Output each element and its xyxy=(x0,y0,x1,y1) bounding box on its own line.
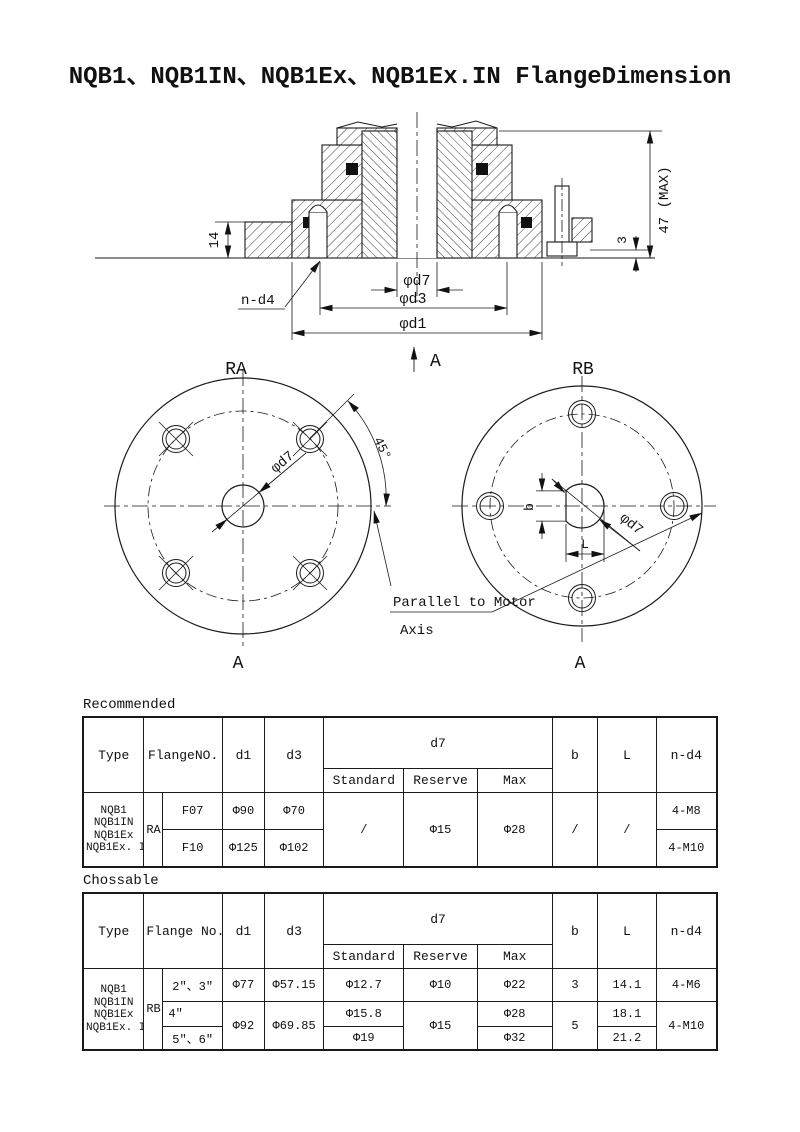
cell-d7-standard: / xyxy=(324,793,404,868)
type-line: NQB1Ex xyxy=(86,1009,141,1022)
dim-d1-text: φd1 xyxy=(399,316,426,333)
ra-section-a-text: A xyxy=(233,654,244,674)
chossable-section: Chossable Type Flange No. d1 d3 d7 b L n… xyxy=(82,873,718,1051)
cell-d7-standard: Φ15.8 xyxy=(324,1002,404,1027)
type-line: NQB1Ex. IN xyxy=(86,842,141,855)
col-header-standard: Standard xyxy=(324,945,404,969)
cell-d3: Φ69.85 xyxy=(264,1002,324,1051)
cell-d7-max: Φ28 xyxy=(477,1002,552,1027)
chossable-table: Type Flange No. d1 d3 d7 b L n-d4 Standa… xyxy=(82,892,718,1051)
cell-d1: Φ77 xyxy=(222,969,264,1002)
table-row: 5"、6" Φ19 Φ32 21.2 xyxy=(83,1027,717,1051)
cell-d7-standard: Φ19 xyxy=(324,1027,404,1051)
col-header-b: b xyxy=(552,893,598,969)
ra-45deg-text: 45° xyxy=(370,435,394,463)
rb-section-a-text: A xyxy=(575,654,586,674)
cell-d3: Φ57.15 xyxy=(264,969,324,1002)
motor-axis-note: Parallel to Motor Axis xyxy=(374,511,702,639)
rb-l-dimension: L xyxy=(566,510,604,562)
cell-b: 5 xyxy=(552,1002,598,1051)
type-line: NQB1IN xyxy=(86,997,141,1010)
cell-d1: Φ125 xyxy=(222,830,264,868)
col-header-d3: d3 xyxy=(264,893,324,969)
cell-n-d4: 4-M10 xyxy=(656,830,717,868)
cell-d7-max: Φ32 xyxy=(477,1027,552,1051)
col-header-reserve: Reserve xyxy=(404,769,478,793)
cell-n-d4: 4-M6 xyxy=(656,969,717,1002)
col-header-n-d4: n-d4 xyxy=(656,717,717,793)
cell-flange-f10: F10 xyxy=(163,830,223,868)
cell-d1: Φ90 xyxy=(222,793,264,830)
motor-axis-note-line1: Parallel to Motor xyxy=(393,595,536,611)
col-header-max: Max xyxy=(477,769,552,793)
cell-d7-reserve: Φ15 xyxy=(404,793,478,868)
cell-type: NQB1 NQB1IN NQB1Ex NQB1Ex. IN xyxy=(83,793,144,868)
cell-d3: Φ70 xyxy=(264,793,324,830)
type-line: NQB1Ex. IN xyxy=(86,1022,141,1035)
table-header-row: Type Flange No. d1 d3 d7 b L n-d4 xyxy=(83,893,717,945)
cell-d7-reserve: Φ10 xyxy=(404,969,478,1002)
section-a-text: A xyxy=(430,352,441,372)
type-line: NQB1 xyxy=(86,805,141,818)
col-header-d1: d1 xyxy=(222,893,264,969)
col-header-l: L xyxy=(598,717,656,793)
col-header-d1: d1 xyxy=(222,717,264,793)
col-header-d7: d7 xyxy=(324,893,552,945)
view-ra-title: RA xyxy=(225,360,247,380)
cell-n-d4: 4-M8 xyxy=(656,793,717,830)
col-header-max: Max xyxy=(477,945,552,969)
type-line: NQB1Ex xyxy=(86,830,141,843)
motor-axis-note-line2: Axis xyxy=(400,623,434,639)
cell-flange-size: 4" xyxy=(163,1002,223,1027)
cell-l: 14.1 xyxy=(598,969,656,1002)
col-header-b: b xyxy=(552,717,598,793)
dim-d3-text: φd3 xyxy=(399,291,426,308)
view-rb-title: RB xyxy=(572,360,594,380)
cell-flange-f07: F07 xyxy=(163,793,223,830)
col-header-d7: d7 xyxy=(324,717,552,769)
cell-d7-reserve: Φ15 xyxy=(404,1002,478,1051)
cell-flange-size: 2"、3" xyxy=(163,969,223,1002)
view-ra: RA φd7 45° A xyxy=(104,360,394,674)
n-d4-text: n-d4 xyxy=(241,293,275,309)
type-line: NQB1 xyxy=(86,984,141,997)
table-row: NQB1 NQB1IN NQB1Ex NQB1Ex. IN RA F07 Φ90… xyxy=(83,793,717,830)
cell-b: / xyxy=(552,793,598,868)
recommended-table: Type FlangeNO. d1 d3 d7 b L n-d4 Standar… xyxy=(82,716,718,868)
cell-l: / xyxy=(598,793,656,868)
recommended-section: Recommended Type FlangeNO. d1 d3 d7 b L … xyxy=(82,697,718,868)
table-row: 4" Φ92 Φ69.85 Φ15.8 Φ15 Φ28 5 18.1 4-M10 xyxy=(83,1002,717,1027)
chossable-heading: Chossable xyxy=(83,873,718,889)
table-header-row: Type FlangeNO. d1 d3 d7 b L n-d4 xyxy=(83,717,717,769)
cell-d3: Φ102 xyxy=(264,830,324,868)
col-header-flange-no: Flange No. xyxy=(144,893,223,969)
dim-d7-text: φd7 xyxy=(403,273,430,290)
dim-47max-text: 47 (MAX) xyxy=(657,166,673,233)
view-rb: RB b L φd7 xyxy=(452,360,716,674)
ra-d7-text: φd7 xyxy=(268,448,298,476)
col-header-flange-no: FlangeNO. xyxy=(144,717,223,793)
col-header-type: Type xyxy=(83,717,144,793)
cross-section-view: 47 (MAX) 14 3 n-d4 φd7 xyxy=(95,112,673,372)
dimension-3: 3 xyxy=(615,236,636,272)
cell-d1: Φ92 xyxy=(222,1002,264,1051)
col-header-l: L xyxy=(598,893,656,969)
cell-flange-size: 5"、6" xyxy=(163,1027,223,1051)
cell-l: 21.2 xyxy=(598,1027,656,1051)
rb-b-text: b xyxy=(522,503,537,511)
type-line: NQB1IN xyxy=(86,817,141,830)
col-header-type: Type xyxy=(83,893,144,969)
col-header-standard: Standard xyxy=(324,769,404,793)
flange-technical-drawing: 47 (MAX) 14 3 n-d4 φd7 xyxy=(0,0,800,700)
rb-l-text: L xyxy=(581,537,589,552)
table-row: NQB1 NQB1IN NQB1Ex NQB1Ex. IN RB 2"、3" Φ… xyxy=(83,969,717,1002)
cell-type: NQB1 NQB1IN NQB1Ex NQB1Ex. IN xyxy=(83,969,144,1051)
dimension-14: 14 xyxy=(207,222,245,258)
cell-group-rb: RB xyxy=(144,969,163,1051)
ra-45deg-dimension: 45° xyxy=(310,394,394,506)
dim-3-text: 3 xyxy=(615,236,630,244)
cell-n-d4: 4-M10 xyxy=(656,1002,717,1051)
col-header-d3: d3 xyxy=(264,717,324,793)
section-arrow-a: A xyxy=(414,347,441,372)
dim-14-text: 14 xyxy=(207,232,223,249)
cell-d7-standard: Φ12.7 xyxy=(324,969,404,1002)
cell-d7-max: Φ22 xyxy=(477,969,552,1002)
recommended-heading: Recommended xyxy=(83,697,718,713)
cell-d7-max: Φ28 xyxy=(477,793,552,868)
cell-l: 18.1 xyxy=(598,1002,656,1027)
cell-group-ra: RA xyxy=(144,793,163,868)
cross-section-body xyxy=(95,112,655,302)
label-n-d4: n-d4 xyxy=(238,261,320,309)
cell-b: 3 xyxy=(552,969,598,1002)
col-header-n-d4: n-d4 xyxy=(656,893,717,969)
col-header-reserve: Reserve xyxy=(404,945,478,969)
